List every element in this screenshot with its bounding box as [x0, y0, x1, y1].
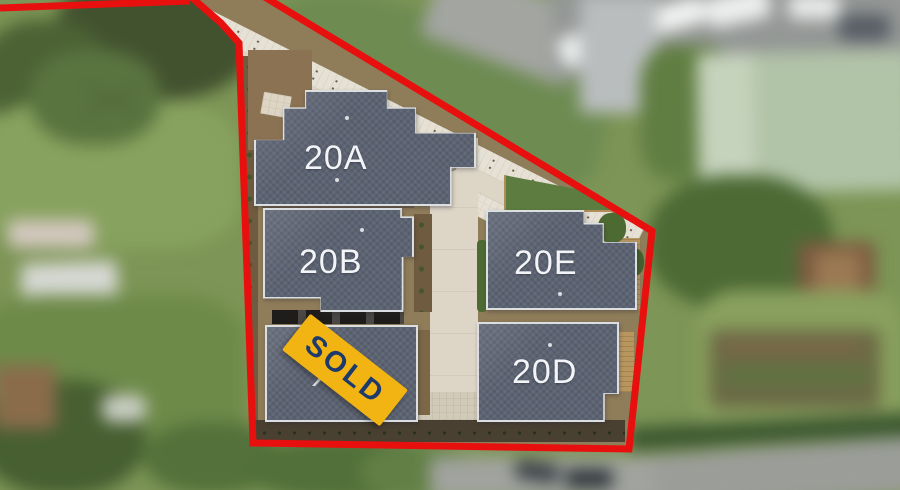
house-unit-20b: 20B: [263, 208, 414, 312]
neighbor-roof: [8, 220, 94, 248]
roof-vent: [345, 116, 349, 120]
green-roof-building: [697, 50, 900, 194]
neighbor-roof: [0, 365, 56, 429]
garden-bed-row: [720, 340, 862, 354]
aerial-site-photo: 20A 20B 20E: [0, 0, 900, 490]
house-unit-20e: 20E: [486, 210, 637, 310]
garden-strip: [414, 214, 432, 312]
unit-label-20a: 20A: [304, 141, 368, 175]
tree-canopy: [30, 50, 160, 145]
parked-car-dark: [838, 14, 890, 41]
roof-vent: [360, 228, 364, 232]
garage-door-row: [272, 310, 404, 324]
timber-deck: [618, 332, 634, 392]
unit-label-20b: 20B: [299, 245, 363, 279]
bare-soil: [418, 330, 430, 415]
unit-label-20e: 20E: [514, 246, 578, 280]
roof-vent: [335, 178, 339, 182]
neighbor-structure: [102, 395, 146, 422]
roof-vent: [548, 343, 552, 347]
house-unit-20d: 20D: [477, 322, 619, 422]
planted-soil-strip: [253, 420, 625, 442]
unit-label-20d: 20D: [512, 355, 577, 389]
parked-car: [788, 0, 840, 19]
parked-car-dark: [565, 469, 613, 488]
roof-vent: [558, 292, 562, 296]
garden-bed-row: [722, 368, 870, 384]
house-unit-20a: 20A: [254, 90, 476, 206]
